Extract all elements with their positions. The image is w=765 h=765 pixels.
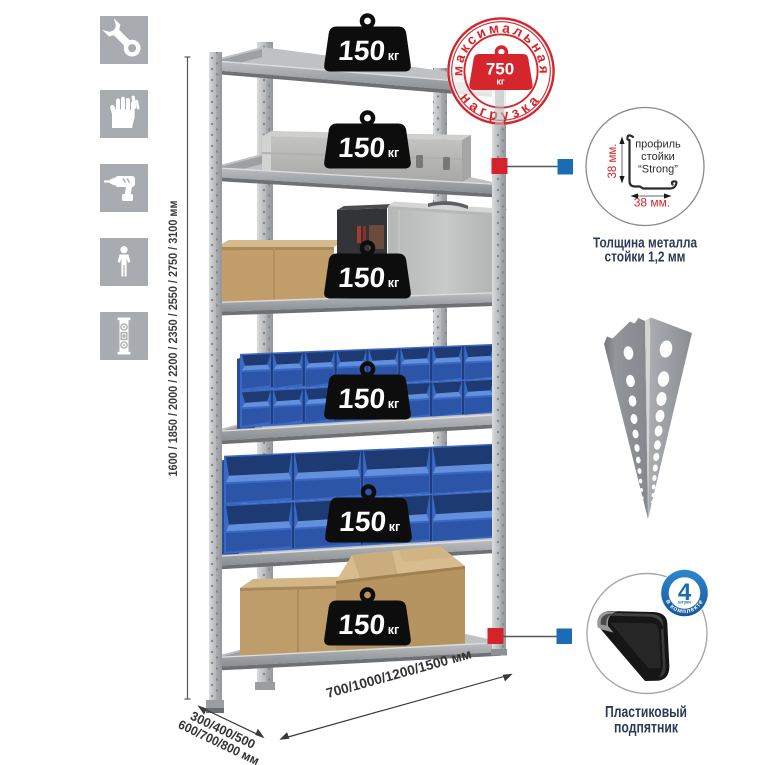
svg-text:штуки: штуки [678,600,691,605]
svg-text:Пластиковый: Пластиковый [605,704,687,721]
svg-text:стойки 1,2 мм: стойки 1,2 мм [605,250,686,266]
svg-text:профиль: профиль [635,139,681,151]
svg-text:38 мм.: 38 мм. [607,144,619,179]
svg-text:“Strong”: “Strong” [638,164,678,176]
svg-text:стойки: стойки [641,151,675,163]
svg-text:подпятник: подпятник [614,720,678,737]
svg-text:38 мм.: 38 мм. [634,196,671,210]
svg-text:1600 / 1850 / 2000 / 2200 / 23: 1600 / 1850 / 2000 / 2200 / 2350 / 2550 … [168,201,180,477]
svg-text:кг: кг [496,77,505,87]
